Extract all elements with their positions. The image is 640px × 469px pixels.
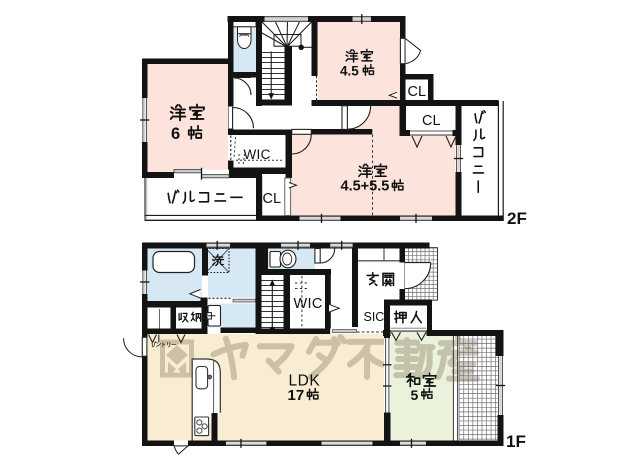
svg-text:SIC: SIC (364, 310, 385, 324)
svg-text:4.5+5.5: 4.5+5.5 (341, 179, 390, 195)
svg-text:1F: 1F (506, 432, 526, 451)
svg-text:17: 17 (288, 387, 305, 404)
svg-text:4.5: 4.5 (340, 64, 359, 79)
svg-text:CL: CL (408, 84, 427, 100)
svg-text:WIC: WIC (294, 296, 323, 312)
svg-text:5: 5 (411, 387, 419, 403)
svg-text:WIC: WIC (244, 147, 271, 162)
svg-text:6: 6 (171, 125, 180, 143)
svg-text:2F: 2F (507, 209, 527, 228)
svg-text:CL: CL (422, 113, 441, 129)
svg-text:CL: CL (263, 191, 282, 207)
